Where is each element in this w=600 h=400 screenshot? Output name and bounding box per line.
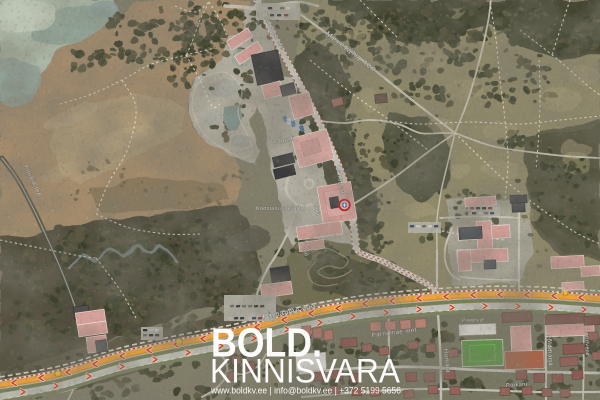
svg-text:www.boldkv.ee | info@boldkv.ee: www.boldkv.ee | info@boldkv.ee | +372 51… [210,386,401,397]
